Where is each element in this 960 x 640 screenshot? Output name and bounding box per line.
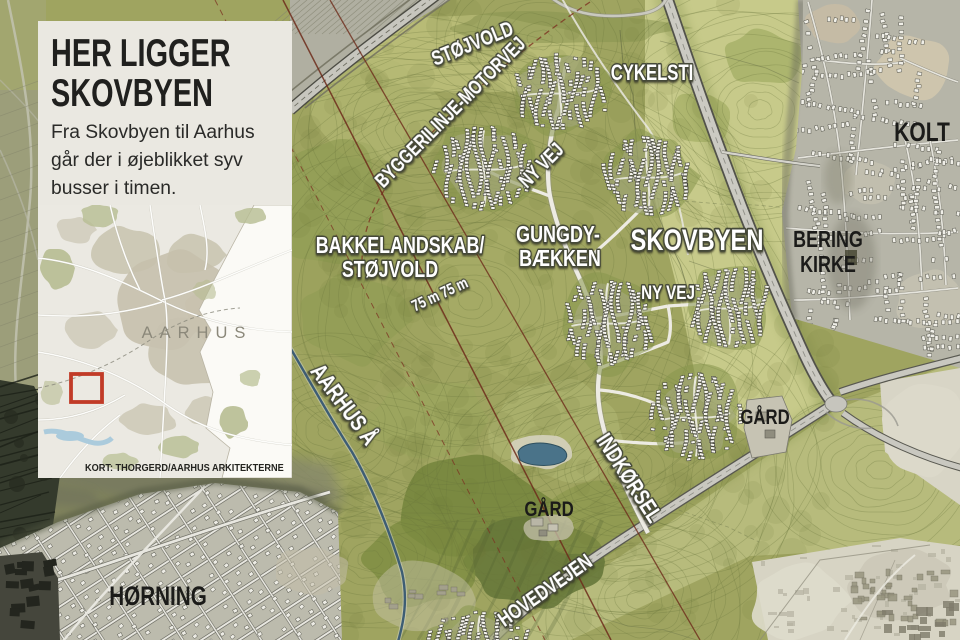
svg-text:KOLT: KOLT (894, 118, 950, 148)
svg-text:BAKKELANDSKAB/: BAKKELANDSKAB/ (316, 233, 485, 259)
svg-text:går der i øjeblikket syv: går der i øjeblikket syv (51, 149, 243, 171)
svg-text:SKOVBYEN: SKOVBYEN (51, 72, 213, 115)
svg-text:STØJVOLD: STØJVOLD (342, 257, 438, 283)
svg-text:GUNGDY-: GUNGDY- (516, 222, 600, 248)
svg-text:HER LIGGER: HER LIGGER (51, 32, 231, 75)
svg-text:HØRNING: HØRNING (109, 582, 207, 612)
svg-text:AARHUS: AARHUS (142, 324, 253, 342)
svg-text:GÅRD: GÅRD (524, 498, 573, 521)
svg-text:Fra Skovbyen til Aarhus: Fra Skovbyen til Aarhus (51, 122, 255, 143)
svg-text:CYKELSTI: CYKELSTI (611, 61, 694, 86)
svg-text:busser i timen.: busser i timen. (51, 178, 176, 199)
svg-text:BÆKKEN: BÆKKEN (519, 246, 601, 272)
svg-text:KORT: THORGERD/AARHUS ARKITEKT: KORT: THORGERD/AARHUS ARKITEKTERNE (85, 463, 284, 475)
svg-text:KIRKE: KIRKE (800, 252, 856, 278)
svg-text:NY VEJ: NY VEJ (641, 281, 695, 303)
svg-text:GÅRD: GÅRD (740, 406, 789, 429)
svg-text:SKOVBYEN: SKOVBYEN (631, 223, 764, 256)
svg-text:BERING: BERING (793, 227, 863, 253)
